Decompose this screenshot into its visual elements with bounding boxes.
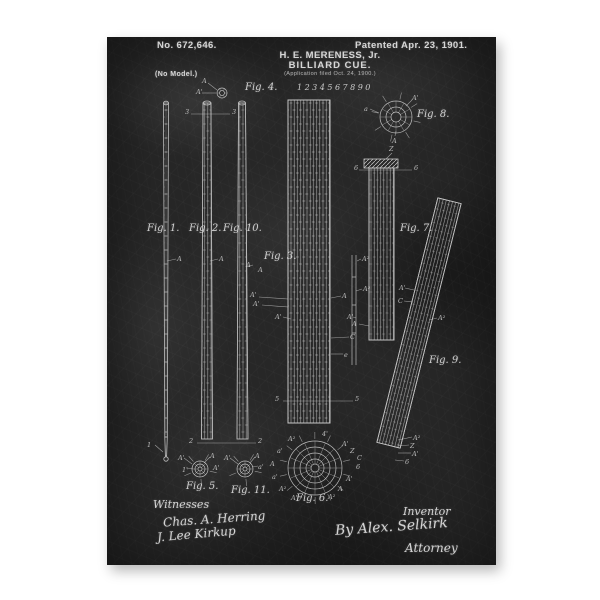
annotation-label: A' bbox=[275, 313, 281, 321]
annotation-label: A bbox=[219, 255, 224, 263]
annotation-label: A' bbox=[213, 464, 219, 472]
annotation-label: a' bbox=[277, 447, 283, 455]
annotation-label: A bbox=[270, 460, 275, 468]
annotation-label: A' bbox=[342, 440, 348, 448]
patent-title: BILLIARD CUE. bbox=[289, 60, 372, 71]
annotation-label: A bbox=[342, 292, 347, 300]
annotation-label: a bbox=[364, 105, 368, 113]
annotation-label: A' bbox=[253, 300, 259, 308]
annotation-label: Z bbox=[389, 145, 394, 153]
annotation-label: A' bbox=[224, 454, 230, 462]
rod-detail bbox=[352, 255, 356, 365]
annotation-label: A' bbox=[412, 94, 418, 102]
annotation-label: A' bbox=[196, 88, 202, 96]
figure-label: Fig. 8. bbox=[417, 109, 449, 120]
annotation-label: A' bbox=[291, 494, 297, 502]
annotation-label: A' bbox=[399, 284, 405, 292]
patent-board: No. 672,646. Patented Apr. 23, 1901. H. … bbox=[107, 37, 496, 565]
annotation-label: 4' bbox=[322, 430, 328, 438]
attorney-label: Attorney bbox=[405, 541, 458, 555]
annotation-label: A² bbox=[438, 314, 445, 322]
annotation-label: A² bbox=[363, 285, 370, 293]
annotation-label: a' bbox=[272, 473, 278, 481]
annotation-label: A bbox=[392, 137, 397, 145]
annotation-label: Z bbox=[350, 447, 355, 455]
figure-label: Fig. 6. bbox=[296, 493, 328, 504]
witnesses-label: Witnesses bbox=[153, 498, 209, 511]
annotation-label: A² bbox=[288, 435, 295, 443]
figure-label: Fig. 3. bbox=[264, 251, 296, 262]
annotation-label: 6 bbox=[405, 458, 409, 466]
segment-numbers: 1234567890 bbox=[297, 83, 373, 92]
annotation-label: C bbox=[357, 454, 362, 462]
annotation-label: A bbox=[258, 266, 263, 274]
annotation-label: A' bbox=[250, 291, 256, 299]
annotation-label: C bbox=[398, 297, 403, 305]
annotation-label: A' bbox=[178, 454, 184, 462]
cue-fig7-column bbox=[364, 159, 398, 340]
annotation-label: 6 bbox=[414, 164, 418, 172]
annotation-label: A' bbox=[346, 475, 352, 483]
annotation-label: Z bbox=[410, 442, 415, 450]
annotation-label: C bbox=[350, 333, 355, 341]
annotation-label: A² bbox=[328, 493, 335, 501]
annotation-label: 3 bbox=[232, 108, 236, 116]
annotation-label: 2 bbox=[189, 437, 193, 445]
annotation-label: e bbox=[344, 351, 348, 359]
cue-fig2 bbox=[202, 101, 213, 439]
model-note: (No Model.) bbox=[155, 71, 198, 78]
annotation-label: A' bbox=[412, 450, 418, 458]
figure-label: Fig. 10. bbox=[223, 223, 262, 234]
figure-label: Fig. 4. bbox=[245, 82, 277, 93]
annotation-label: 5 bbox=[275, 395, 279, 403]
annotation-label: A bbox=[338, 485, 343, 493]
figure-label: Fig. 1. bbox=[147, 223, 179, 234]
figure-label: Fig. 2. bbox=[189, 223, 221, 234]
annotation-label: A bbox=[210, 452, 215, 460]
annotation-label: 3 bbox=[185, 108, 189, 116]
annotation-label: 6 bbox=[356, 463, 360, 471]
figure-label: Fig. 9. bbox=[429, 355, 461, 366]
figure-label: Fig. 7. bbox=[400, 223, 432, 234]
annotation-label: 6 bbox=[354, 164, 358, 172]
annotation-label: 2 bbox=[258, 437, 262, 445]
figure-label: Fig. 5. bbox=[186, 481, 218, 492]
cue-fig10 bbox=[237, 101, 248, 439]
annotation-label: 1' bbox=[182, 466, 188, 474]
annotation-label: A² bbox=[362, 255, 369, 263]
annotation-label: A bbox=[255, 452, 260, 460]
application-note: (Application filed Oct. 24, 1900.) bbox=[284, 71, 376, 77]
cue-fig1 bbox=[164, 101, 169, 461]
annotation-label: A bbox=[352, 320, 357, 328]
annotation-label: 1 bbox=[147, 441, 151, 449]
annotation-label: A bbox=[177, 255, 182, 263]
annotation-label: a' bbox=[258, 463, 264, 471]
patent-print-page: No. 672,646. Patented Apr. 23, 1901. H. … bbox=[0, 0, 600, 600]
figure-label: Fig. 11. bbox=[231, 485, 270, 496]
annotation-label: 5 bbox=[355, 395, 359, 403]
annotation-label: A² bbox=[279, 485, 286, 493]
annotation-label: A bbox=[202, 77, 207, 85]
annotation-label: A² bbox=[413, 434, 420, 442]
patent-number: No. 672,646. bbox=[157, 40, 217, 51]
annotation-label: A bbox=[246, 261, 251, 269]
